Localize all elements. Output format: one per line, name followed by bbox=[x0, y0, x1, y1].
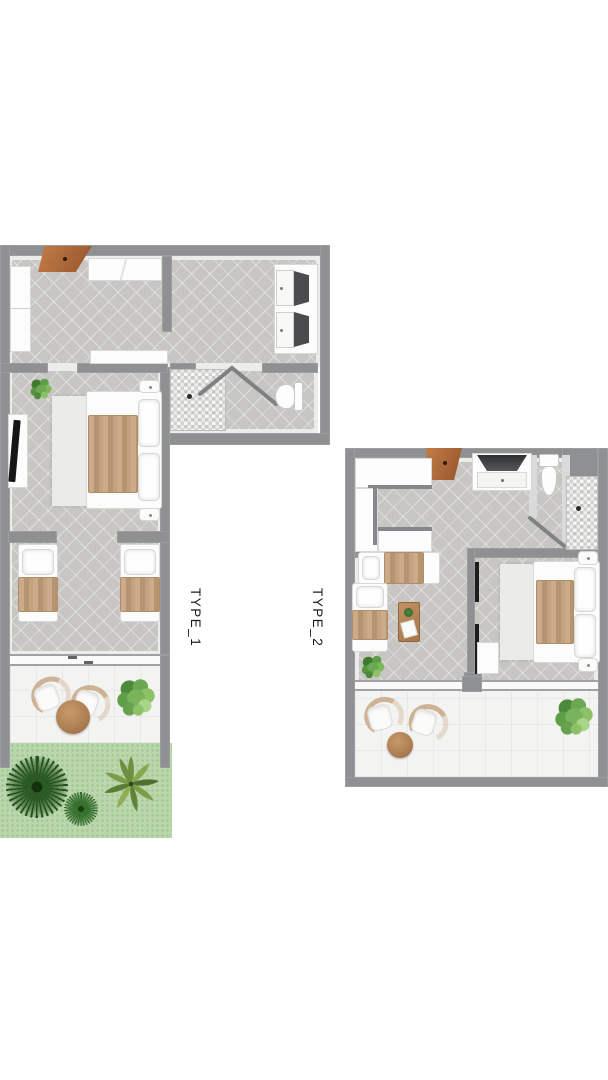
coffee-table bbox=[387, 732, 413, 758]
nightstand bbox=[139, 380, 160, 393]
wall-bedroom-divider bbox=[467, 548, 475, 678]
dresser bbox=[477, 642, 499, 674]
bed-blanket bbox=[88, 415, 138, 493]
kitchen-appliance bbox=[294, 312, 309, 347]
kitchen-lower-unit bbox=[378, 530, 432, 552]
plan-type-1-label: TYPE_1 bbox=[188, 588, 203, 654]
wall-left bbox=[0, 245, 10, 768]
shower-screen bbox=[194, 362, 280, 410]
wardrobe bbox=[10, 266, 31, 352]
wall-twinroom-seg2 bbox=[117, 531, 170, 543]
shower-screen bbox=[526, 512, 568, 552]
sliding-door bbox=[355, 680, 462, 691]
toilet-tank bbox=[294, 382, 303, 411]
sliding-door bbox=[10, 654, 160, 666]
potted-plant bbox=[552, 695, 596, 739]
bed-pillow bbox=[138, 453, 160, 501]
kitchen-cabinet-door bbox=[276, 312, 294, 348]
potted-plant bbox=[359, 653, 387, 681]
coffee-table bbox=[56, 700, 90, 734]
vanity-counter bbox=[477, 472, 527, 488]
sliding-door-handle bbox=[84, 661, 93, 664]
garden-palm-plant bbox=[102, 753, 160, 815]
table-plant bbox=[404, 608, 413, 617]
floorplan-canvas: TYPE_1 TYPE_2 bbox=[0, 0, 608, 1080]
wall-twinroom-seg1 bbox=[8, 531, 57, 543]
bed-blanket bbox=[384, 552, 424, 584]
potted-plant bbox=[28, 376, 54, 402]
plan-type-2-label: TYPE_2 bbox=[310, 588, 325, 654]
nightstand bbox=[578, 658, 598, 672]
sliding-door bbox=[482, 680, 598, 691]
nightstand bbox=[578, 551, 598, 565]
potted-plant bbox=[114, 676, 158, 720]
terrace-center-post bbox=[462, 676, 482, 692]
bed-pillow bbox=[362, 556, 380, 580]
bed-blanket bbox=[536, 580, 574, 644]
bed-pillow bbox=[356, 586, 384, 608]
garden-bush bbox=[6, 756, 68, 818]
entry-cabinet bbox=[88, 258, 162, 281]
kitchen-counter-top bbox=[355, 458, 432, 488]
wall-right-upper bbox=[320, 245, 330, 445]
bed-pillow bbox=[22, 549, 54, 575]
bed-blanket bbox=[352, 610, 388, 640]
bed-blanket bbox=[120, 577, 160, 612]
sliding-door-handle bbox=[68, 656, 77, 659]
nightstand bbox=[139, 508, 160, 521]
bed-pillow bbox=[138, 399, 160, 447]
bed-pillow bbox=[124, 549, 156, 575]
shower-tile bbox=[566, 476, 598, 550]
hall-shelf bbox=[90, 350, 168, 364]
wardrobe-divider bbox=[11, 308, 30, 309]
kitchen-cabinet-door bbox=[276, 270, 294, 306]
pocket-door-track bbox=[475, 562, 479, 602]
wall-bottom bbox=[345, 777, 608, 787]
toilet-bowl bbox=[275, 384, 296, 409]
kitchen-appliance bbox=[294, 271, 309, 306]
kitchen-counter-edge bbox=[373, 488, 377, 545]
bed-pillow bbox=[574, 567, 596, 612]
bed-blanket bbox=[18, 577, 58, 612]
wall-mid-seg2 bbox=[77, 363, 168, 373]
bed-pillow bbox=[574, 614, 596, 658]
wall-entry-divider bbox=[162, 256, 172, 332]
wall-terrace-right-stub bbox=[160, 655, 170, 768]
wall-bottom-upper-block bbox=[160, 433, 330, 445]
kitchen-lower-unit-edge bbox=[378, 527, 432, 531]
wall-mid-seg1 bbox=[0, 363, 48, 373]
garden-bush-small bbox=[64, 792, 98, 826]
